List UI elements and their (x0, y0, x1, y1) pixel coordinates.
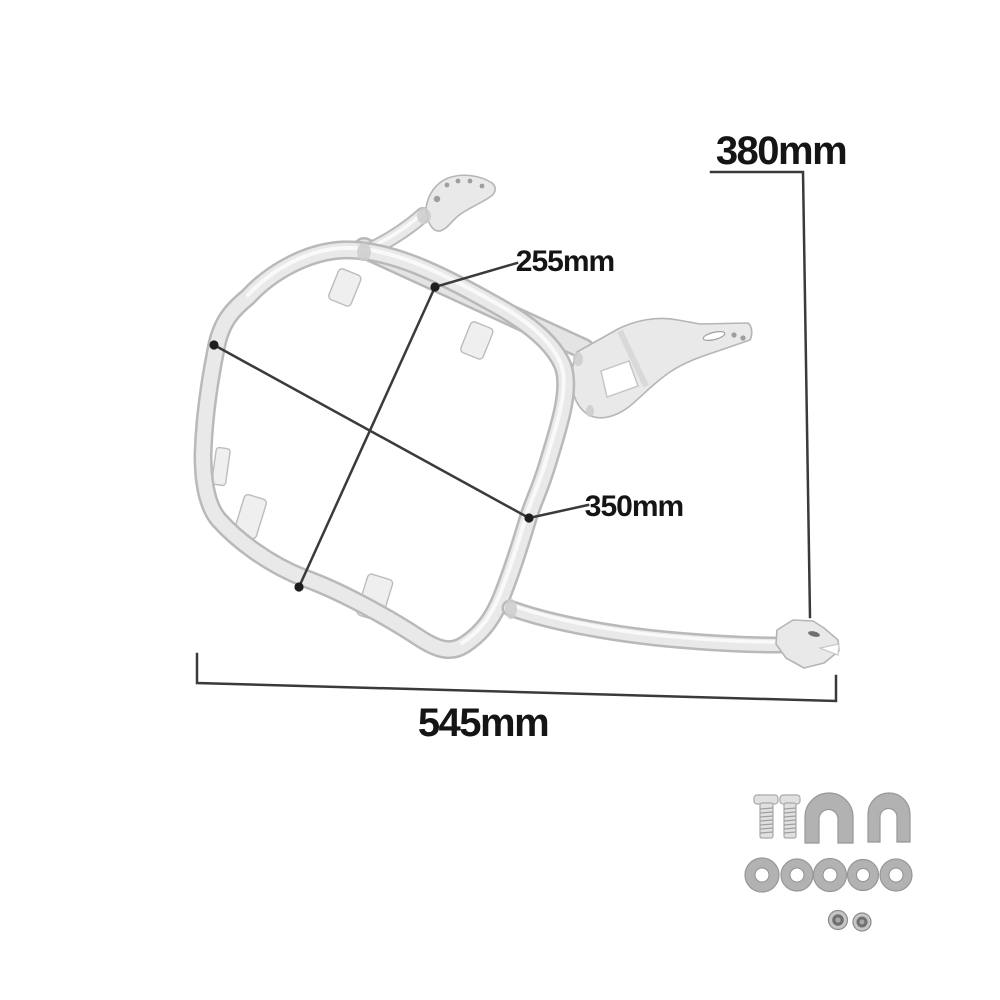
bolt (780, 795, 800, 838)
dimension-diagram: 380mm 545mm 255mm 350mm (0, 0, 1000, 1000)
rear-leg-tube (510, 605, 780, 645)
washer (848, 860, 879, 891)
nut (829, 911, 848, 930)
u-bracket (868, 793, 910, 842)
bolt (754, 795, 778, 838)
foot-bracket (776, 620, 839, 668)
dimension-label-height: 380mm (716, 129, 846, 173)
dimension-line-width (197, 654, 836, 701)
dimension-label-diagonal-outer: 350mm (585, 490, 683, 523)
hardware-kit (745, 793, 912, 931)
washer (781, 859, 813, 891)
dimension-label-width: 545mm (418, 701, 548, 745)
u-bracket (805, 793, 853, 843)
washer (880, 859, 912, 891)
nut (853, 913, 871, 931)
right-mounting-bracket (572, 318, 752, 417)
washer (745, 858, 779, 892)
dimension-line-height (711, 172, 810, 617)
diagram-canvas: 380mm 545mm 255mm 350mm (0, 0, 1000, 1000)
dimension-label-diagonal-inner: 255mm (516, 245, 614, 278)
top-mounting-bracket (426, 175, 495, 231)
washer (814, 859, 847, 892)
